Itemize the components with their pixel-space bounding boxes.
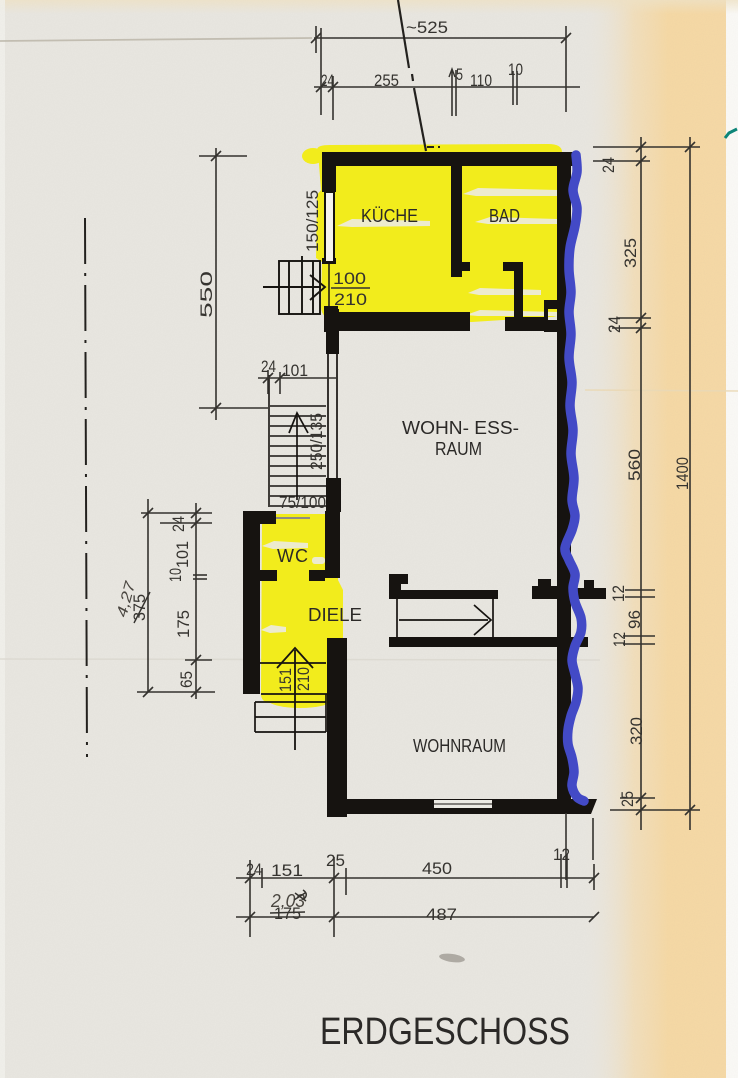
svg-text:10: 10 <box>508 60 523 79</box>
svg-text:101: 101 <box>282 361 308 380</box>
svg-text:210: 210 <box>334 290 367 309</box>
svg-text:WOHN- ESS-: WOHN- ESS- <box>402 418 519 438</box>
svg-text:25: 25 <box>618 791 637 807</box>
svg-text:560: 560 <box>625 449 644 481</box>
svg-text:96: 96 <box>625 610 644 629</box>
svg-text:325: 325 <box>621 238 640 268</box>
svg-text:RAUM: RAUM <box>435 439 482 459</box>
svg-text:12: 12 <box>553 845 570 864</box>
svg-text:24: 24 <box>599 157 618 173</box>
svg-text:10: 10 <box>166 568 185 582</box>
svg-text:25: 25 <box>326 851 345 870</box>
svg-text:150/125: 150/125 <box>303 190 322 252</box>
svg-text:24: 24 <box>261 357 276 376</box>
svg-text:24: 24 <box>169 516 188 532</box>
svg-text:WC: WC <box>277 546 308 566</box>
svg-text:12: 12 <box>610 632 629 647</box>
svg-text:12: 12 <box>609 585 628 602</box>
svg-text:175: 175 <box>174 610 193 638</box>
svg-text:110: 110 <box>470 71 492 90</box>
svg-text:24: 24 <box>246 860 262 879</box>
svg-text:450: 450 <box>422 859 452 878</box>
svg-text:24: 24 <box>321 71 334 90</box>
svg-text:320: 320 <box>627 717 646 745</box>
svg-text:151: 151 <box>276 668 295 692</box>
svg-text:101: 101 <box>173 541 192 568</box>
svg-text:WOHNRAUM: WOHNRAUM <box>413 736 506 756</box>
svg-text:KÜCHE: KÜCHE <box>361 206 418 226</box>
svg-text:100: 100 <box>333 269 366 288</box>
svg-text:ERDGESCHOSS: ERDGESCHOSS <box>320 1011 570 1053</box>
svg-text:255: 255 <box>374 71 399 90</box>
svg-text:1400: 1400 <box>673 457 692 490</box>
svg-text:BAD: BAD <box>489 206 520 226</box>
svg-text:487: 487 <box>426 905 457 924</box>
svg-text:210: 210 <box>294 667 313 691</box>
svg-text:151: 151 <box>271 861 303 880</box>
svg-text:~525: ~525 <box>406 18 448 37</box>
svg-text:65: 65 <box>177 671 196 688</box>
svg-text:550: 550 <box>197 271 216 318</box>
svg-text:75/100: 75/100 <box>279 493 326 512</box>
svg-text:DIELE: DIELE <box>308 605 362 625</box>
svg-text:250/135: 250/135 <box>307 413 326 470</box>
svg-text:24: 24 <box>605 316 624 333</box>
svg-text:5: 5 <box>456 65 463 84</box>
